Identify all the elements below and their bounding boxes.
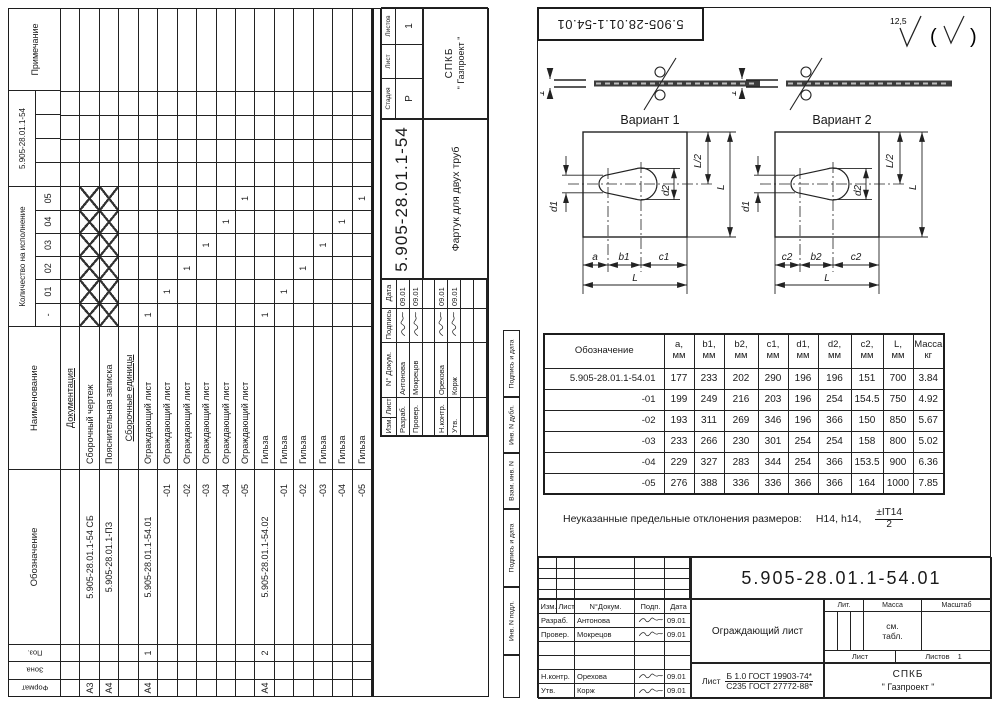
dim-cell: 336 — [724, 473, 758, 494]
spec-cell — [314, 256, 332, 279]
inventory-strip-cell: Подпись и дата — [503, 330, 520, 397]
revision-cell — [635, 579, 665, 590]
dimensions-table-body: 5.905-28.01.1-54.01177233202290196196151… — [544, 368, 944, 494]
spec-cell — [217, 661, 235, 679]
qty-col-blank — [36, 138, 60, 162]
dim-cell: 366 — [818, 410, 851, 431]
head-izm: Изм. — [382, 417, 396, 435]
spec-cell: 5.905-28.01.1-54 СБ — [80, 469, 98, 644]
spec-cell — [275, 303, 293, 326]
spec-cell — [217, 91, 235, 115]
spec-cell — [61, 162, 79, 186]
spec-cell — [61, 644, 79, 661]
spec-cell — [275, 186, 293, 209]
spec-cell — [236, 303, 254, 326]
dim-header-cell: L, мм — [883, 334, 913, 368]
svg-text:c1: c1 — [659, 252, 670, 263]
sign-date: 09.01 — [665, 684, 690, 697]
dim-cell: 254 — [788, 431, 818, 452]
spec-cell — [275, 115, 293, 139]
sign-role: Разраб. — [397, 397, 409, 435]
drawing-title: Ограждающий лист — [691, 599, 824, 663]
dim-cell: 164 — [851, 473, 883, 494]
head-list: Лист — [557, 600, 575, 613]
spec-cell — [178, 9, 196, 91]
spec-cell — [333, 139, 351, 163]
spec-cell: -02 — [178, 469, 196, 644]
revision-cell — [635, 558, 665, 569]
dim-cell: 177 — [664, 368, 694, 389]
dim-cell: 153.5 — [851, 452, 883, 473]
dim-header-cell: c1, мм — [758, 334, 788, 368]
revision-cell — [575, 569, 635, 580]
lit-box — [825, 612, 838, 650]
spec-cell — [61, 186, 79, 209]
spec-cell: 1 — [178, 256, 196, 279]
sign-signature — [474, 308, 486, 342]
qty-col-header: 02 — [36, 256, 60, 279]
dim-cell: 5.905-28.01.1-54.01 — [544, 368, 664, 389]
sign-row: Н.контр.Орехова09.01 — [539, 670, 690, 684]
spec-cell: 1 — [139, 303, 157, 326]
variant-label: Вариант 2 — [812, 113, 871, 127]
svg-text:d2: d2 — [661, 184, 672, 196]
revision-cell — [539, 558, 557, 569]
dim-cell: 366 — [818, 473, 851, 494]
spec-row: А425.905-28.01.1-54.02Гильза1 — [255, 9, 274, 696]
sign-role — [461, 397, 473, 435]
spec-cell — [314, 91, 332, 115]
spec-cell — [61, 256, 79, 279]
revision-cell — [665, 590, 690, 600]
lit-box — [838, 612, 851, 650]
dim-cell: 283 — [724, 452, 758, 473]
spec-row: -05Ограждающий лист1 — [236, 9, 255, 696]
signature — [638, 629, 664, 639]
sign-role: Утв. — [448, 397, 460, 435]
spec-cell — [353, 256, 371, 279]
spec-cell — [255, 210, 273, 233]
sign-signature — [410, 308, 422, 342]
material-bottom: С235 ГОСТ 27772-88* — [726, 682, 812, 691]
spec-cell — [61, 303, 79, 326]
spec-cell — [139, 210, 157, 233]
spec-cell — [255, 9, 273, 91]
sign-row: Утв.Корж09.01 — [539, 684, 690, 698]
spec-cell — [353, 679, 371, 696]
revision-cell — [635, 590, 665, 600]
spec-cell — [80, 162, 98, 186]
sign-row: Разраб.Антонова09.01 — [539, 614, 690, 628]
dim-cell: 150 — [851, 410, 883, 431]
head-date: Дата — [382, 280, 396, 308]
spec-cell — [80, 91, 98, 115]
spec-cell — [80, 186, 98, 209]
inventory-strip-cell: Инв. N дубл. — [503, 397, 520, 453]
sign-role: Разраб. — [539, 614, 575, 627]
sign-name: Орехова — [575, 670, 635, 683]
spec-cell: А4 — [139, 679, 157, 696]
spec-cell — [139, 256, 157, 279]
dim-cell: 196 — [788, 389, 818, 410]
spec-cell: Ограждающий лист — [236, 326, 254, 469]
spec-cell — [217, 679, 235, 696]
spec-cell — [255, 279, 273, 302]
dim-row: -01199249216203196254154.57504.92 — [544, 389, 944, 410]
spec-cell: -01 — [158, 469, 176, 644]
inventory-strip-label: Подпись и дата — [508, 524, 515, 573]
spec-cell — [100, 644, 118, 661]
dim-header-cell: Масса кг — [913, 334, 944, 368]
spec-cell — [178, 115, 196, 139]
spec-cell: -04 — [217, 469, 235, 644]
org-line2: " Газпроект " — [882, 682, 935, 693]
dim-header-cell: b1, мм — [694, 334, 724, 368]
spec-cell: 1 — [353, 186, 371, 209]
sign-name: Орехова — [435, 342, 447, 397]
spec-cell — [139, 139, 157, 163]
inventory-strip-label: Инв. N подл. — [508, 601, 515, 641]
revision-cell — [539, 569, 557, 580]
spec-row: -05Гильза1 — [353, 9, 372, 696]
spec-cell — [197, 210, 215, 233]
spec-cell — [158, 210, 176, 233]
stage-label: Стадия — [382, 78, 396, 118]
spec-cell — [217, 9, 235, 91]
spec-cell — [80, 115, 98, 139]
sign-signature — [635, 628, 665, 641]
spec-cell — [236, 139, 254, 163]
spec-cell — [80, 644, 98, 661]
spec-cell — [80, 210, 98, 233]
spec-cell — [294, 186, 312, 209]
spec-cell — [119, 661, 137, 679]
revision-grid — [538, 557, 691, 599]
spec-cell: Гильза — [353, 326, 371, 469]
org-line2: " Газпроект " — [456, 37, 467, 90]
spec-cell — [255, 186, 273, 209]
spec-cell — [275, 91, 293, 115]
sign-row — [423, 280, 436, 435]
spec-cell — [236, 679, 254, 696]
sign-signature — [423, 308, 435, 342]
spec-cell — [294, 233, 312, 256]
sign-role: Н.контр. — [435, 397, 447, 435]
sign-row: Провер.Мокрецов09.01 — [410, 280, 423, 435]
sheet-cell: Лист — [825, 651, 896, 662]
spec-cell — [158, 644, 176, 661]
spec-cell — [353, 303, 371, 326]
spec-cell — [294, 279, 312, 302]
spec-cell — [61, 9, 79, 91]
spec-cell: А4 — [100, 679, 118, 696]
spec-cell: -04 — [333, 469, 351, 644]
spec-cell — [119, 679, 137, 696]
spec-cell — [100, 115, 118, 139]
spec-title: Фартук для двух труб — [423, 119, 488, 279]
dim-cell: -01 — [544, 389, 664, 410]
spec-cell — [119, 186, 137, 209]
spec-cell — [119, 256, 137, 279]
dim-cell: 327 — [694, 452, 724, 473]
spec-cell — [158, 303, 176, 326]
spec-cell — [314, 139, 332, 163]
spec-cell — [197, 186, 215, 209]
spec-cell — [197, 115, 215, 139]
spec-cell: 1 — [236, 186, 254, 209]
spec-cell — [333, 644, 351, 661]
spec-cell — [100, 162, 118, 186]
revision-cell — [665, 579, 690, 590]
spec-cell: Ограждающий лист — [178, 326, 196, 469]
dim-cell: 229 — [664, 452, 694, 473]
spec-cell: 1 — [158, 279, 176, 302]
spec-cell — [158, 661, 176, 679]
note-text: Неуказанные предельные отклонения размер… — [563, 513, 802, 525]
dim-cell: 700 — [883, 368, 913, 389]
spec-cell — [197, 9, 215, 91]
head-list: Лист — [382, 397, 396, 417]
spec-cell: Гильза — [333, 326, 351, 469]
spec-cell — [294, 115, 312, 139]
roughness-mark: 12,5 ( ) — [888, 12, 990, 56]
spec-cell — [314, 661, 332, 679]
spec-cell — [100, 91, 118, 115]
spec-cell — [255, 256, 273, 279]
sign-date: 09.01 — [665, 628, 690, 641]
spec-cell — [314, 115, 332, 139]
svg-text:L: L — [908, 184, 919, 190]
dim-header-cell: d1, мм — [788, 334, 818, 368]
spec-cell — [314, 644, 332, 661]
spec-cell — [197, 679, 215, 696]
spec-cell: Ограждающий лист — [217, 326, 235, 469]
drawing-title-block: 5.905-28.01.1-54.01 Изм. Лист N°Докум. П… — [537, 556, 991, 698]
col-zone-header: Зона — [9, 661, 60, 679]
spec-cell — [61, 91, 79, 115]
qty-col-blank — [36, 162, 60, 186]
dim-cell: 196 — [788, 410, 818, 431]
col-name-header: Наименование — [9, 326, 60, 469]
note-tolerances: H14, h14, — [816, 513, 862, 525]
sign-date: 09.01 — [397, 280, 409, 308]
sign-role — [539, 642, 575, 655]
sheets-cell: Листов 1 — [896, 651, 991, 662]
sign-date: 09.01 — [410, 280, 422, 308]
sign-name: Мокрецов — [575, 628, 635, 641]
sign-date — [665, 642, 690, 655]
dim-cell: 269 — [724, 410, 758, 431]
weld-spot-icon — [801, 90, 811, 100]
spec-cell — [314, 303, 332, 326]
mass-label: Масса — [864, 600, 922, 612]
dim-cell: 366 — [818, 452, 851, 473]
spec-row: Сборочные единицы — [119, 9, 138, 696]
spec-row: А45.905-28.01.1-ПЗПояснительная записка — [100, 9, 119, 696]
svg-text:1: 1 — [732, 90, 739, 96]
spec-cell — [217, 233, 235, 256]
sign-row: Утв.Корж09.01 — [448, 280, 461, 435]
spec-cell — [139, 661, 157, 679]
svg-text:c2: c2 — [782, 252, 793, 263]
head-date: Дата — [665, 600, 690, 613]
spec-cell — [217, 115, 235, 139]
head-docnum: N° Докум. — [382, 342, 396, 397]
spec-cell — [333, 303, 351, 326]
spec-cell — [197, 644, 215, 661]
dim-cell: 193 — [664, 410, 694, 431]
spec-cell — [236, 233, 254, 256]
spec-cell — [119, 303, 137, 326]
spec-cell — [80, 139, 98, 163]
signature — [398, 312, 408, 338]
head-docnum: N°Докум. — [575, 600, 635, 613]
sign-role — [474, 397, 486, 435]
sign-date — [665, 656, 690, 669]
spec-cell — [217, 256, 235, 279]
sign-date — [461, 280, 473, 308]
spec-cell — [61, 469, 79, 644]
spec-title-block: Изм. Лист N° Докум. Подпись Дата Разраб.… — [380, 8, 489, 437]
sign-row: Разраб.Антонова09.01 — [397, 280, 410, 435]
spec-cell — [255, 139, 273, 163]
sign-name: Корж — [575, 684, 635, 697]
spec-cell — [158, 186, 176, 209]
spec-cell: -05 — [353, 469, 371, 644]
drawing-org: СПКБ " Газпроект " — [824, 663, 992, 699]
spec-cell — [294, 9, 312, 91]
sign-signature — [397, 308, 409, 342]
spec-cell: Ограждающий лист — [158, 326, 176, 469]
org-line1: СПКБ — [444, 48, 457, 79]
spec-cell — [178, 644, 196, 661]
svg-text:a: a — [592, 252, 598, 263]
dim-cell: 202 — [724, 368, 758, 389]
scanned-gost-drawing: Формат Зона Поз. Обозначение Наименовани… — [0, 0, 997, 705]
spec-cell: 5.905-28.01.1-54.02 — [255, 469, 273, 644]
spec-cell — [197, 162, 215, 186]
spec-cell — [275, 644, 293, 661]
sign-signature — [461, 308, 473, 342]
spec-cell — [158, 139, 176, 163]
dim-cell: 7.85 — [913, 473, 944, 494]
dim-cell: 1000 — [883, 473, 913, 494]
drawing-doc-number: 5.905-28.01.1-54.01 — [691, 557, 992, 599]
dim-cell: 196 — [818, 368, 851, 389]
spec-cell — [353, 661, 371, 679]
spec-cell: А4 — [255, 679, 273, 696]
spec-cell — [314, 162, 332, 186]
spec-cell — [100, 210, 118, 233]
spec-cell — [275, 256, 293, 279]
roughness-value: 12,5 — [890, 16, 907, 26]
spec-cell — [178, 679, 196, 696]
spec-cell — [178, 303, 196, 326]
dim-cell: 388 — [694, 473, 724, 494]
lit-mass-scale-block: Лит. Масса Масштаб см. табл. Лист Листов… — [824, 599, 992, 663]
spec-cell — [236, 210, 254, 233]
spec-cell: 2 — [255, 644, 273, 661]
flipped-designation: 5.905-28.01.1-54.01 — [557, 17, 684, 32]
paren-close: ) — [970, 26, 977, 48]
spec-cell — [353, 644, 371, 661]
org-line1: СПКБ — [893, 669, 924, 682]
spec-cell — [275, 162, 293, 186]
inventory-strip-cell: Подпись и дата — [503, 509, 520, 587]
col-format-header: Формат — [9, 679, 60, 696]
spec-cell — [314, 279, 332, 302]
spec-cell — [353, 210, 371, 233]
spec-sign-block: Изм. Лист N° Докум. Подпись Дата Разраб.… — [381, 279, 488, 436]
inventory-strip-label: Инв. N дубл. — [508, 405, 515, 445]
variant-2-drawing: 1 Вариант 2 d1 d2 — [732, 52, 972, 304]
sheet-value — [396, 44, 423, 78]
dim-cell: 151 — [851, 368, 883, 389]
dim-row: -04229327283344254366153.59006.36 — [544, 452, 944, 473]
spec-cell — [333, 661, 351, 679]
spec-cell — [314, 186, 332, 209]
spec-cell — [100, 9, 118, 91]
spec-cell — [255, 115, 273, 139]
spec-doc-number: 5.905-28.01.1-54 — [381, 119, 423, 279]
svg-text:b1: b1 — [618, 252, 629, 263]
spec-cell — [61, 115, 79, 139]
spec-cell — [178, 279, 196, 302]
spec-cell — [139, 91, 157, 115]
sign-date: 09.01 — [665, 670, 690, 683]
spec-cell: -02 — [294, 469, 312, 644]
spec-cell — [197, 303, 215, 326]
spec-cell — [197, 91, 215, 115]
dim-cell: -02 — [544, 410, 664, 431]
stage-block: Стадия Лист Листов Р 1 — [381, 7, 423, 119]
sign-role: Провер. — [539, 628, 575, 641]
spec-cell — [178, 210, 196, 233]
sign-signature — [635, 670, 665, 683]
spec-table-header: Формат Зона Поз. Обозначение Наименовани… — [9, 9, 61, 696]
dim-cell: 266 — [694, 431, 724, 452]
spec-row: А415.905-28.01.1-54.01Ограждающий лист1 — [139, 9, 158, 696]
spec-cell — [100, 233, 118, 256]
spec-cell — [294, 661, 312, 679]
spec-cell — [236, 162, 254, 186]
dim-cell: 216 — [724, 389, 758, 410]
spec-cell — [61, 139, 79, 163]
spec-row: -03Гильза1 — [314, 9, 333, 696]
spec-cell — [294, 679, 312, 696]
spec-cell — [236, 644, 254, 661]
spec-cell — [275, 233, 293, 256]
spec-cell — [236, 9, 254, 91]
spec-cell — [119, 162, 137, 186]
spec-cell — [236, 91, 254, 115]
spec-cell — [158, 162, 176, 186]
dim-cell: 254 — [818, 431, 851, 452]
spec-cell: -03 — [314, 469, 332, 644]
specification-page: Формат Зона Поз. Обозначение Наименовани… — [0, 0, 498, 705]
spec-cell — [294, 91, 312, 115]
spec-cell — [236, 279, 254, 302]
spec-cell — [217, 186, 235, 209]
spec-cell — [119, 233, 137, 256]
svg-text:d1: d1 — [549, 201, 560, 212]
sign-name — [575, 656, 635, 669]
revision-cell — [575, 579, 635, 590]
sign-name: Антонова — [575, 614, 635, 627]
dim-cell: 301 — [758, 431, 788, 452]
spec-table: Формат Зона Поз. Обозначение Наименовани… — [8, 8, 374, 697]
spec-cell — [275, 210, 293, 233]
